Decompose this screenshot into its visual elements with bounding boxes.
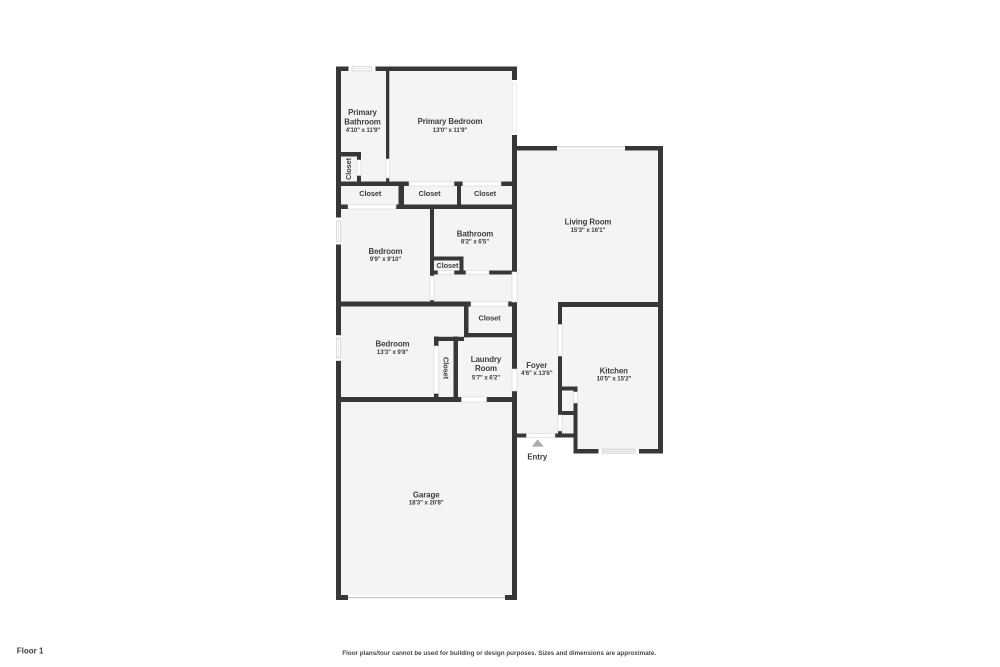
svg-text:5'7" x 6'2": 5'7" x 6'2" xyxy=(472,374,500,381)
svg-text:Closet: Closet xyxy=(441,357,450,380)
svg-text:Closet: Closet xyxy=(344,157,353,180)
svg-text:Kitchen: Kitchen xyxy=(600,366,629,375)
svg-text:18'3" x 20'8": 18'3" x 20'8" xyxy=(409,500,444,507)
svg-text:Bathroom: Bathroom xyxy=(457,229,494,238)
svg-text:Bathroom: Bathroom xyxy=(344,118,381,127)
svg-text:Primary Bedroom: Primary Bedroom xyxy=(418,117,483,126)
svg-text:Closet: Closet xyxy=(479,314,502,323)
svg-text:Closet: Closet xyxy=(474,189,497,198)
svg-text:Room: Room xyxy=(475,364,497,373)
svg-text:Living Room: Living Room xyxy=(565,218,612,227)
svg-text:Foyer: Foyer xyxy=(526,361,547,370)
svg-text:4'6" x 13'6": 4'6" x 13'6" xyxy=(521,370,553,377)
svg-text:15'3" x 16'1": 15'3" x 16'1" xyxy=(571,227,606,234)
svg-text:8'2" x 6'5": 8'2" x 6'5" xyxy=(461,238,489,245)
svg-text:Primary: Primary xyxy=(348,108,377,117)
svg-text:Laundry: Laundry xyxy=(471,355,502,364)
svg-text:Closet: Closet xyxy=(436,261,459,270)
svg-text:Closet: Closet xyxy=(359,189,382,198)
svg-text:Floor plans/tour cannot be use: Floor plans/tour cannot be used for buil… xyxy=(342,650,656,657)
svg-text:9'9" x 9'10": 9'9" x 9'10" xyxy=(370,256,402,263)
svg-text:Garage: Garage xyxy=(413,491,440,500)
svg-text:Floor 1: Floor 1 xyxy=(17,646,44,655)
svg-text:Closet: Closet xyxy=(419,189,442,198)
svg-text:Bedroom: Bedroom xyxy=(376,340,410,349)
svg-text:10'5" x 15'2": 10'5" x 15'2" xyxy=(597,376,632,383)
svg-text:Entry: Entry xyxy=(527,452,548,461)
svg-text:Bedroom: Bedroom xyxy=(369,247,403,256)
svg-text:13'3" x 9'8": 13'3" x 9'8" xyxy=(377,349,409,356)
svg-text:13'0" x 11'9": 13'0" x 11'9" xyxy=(433,127,468,134)
svg-text:4'10" x 11'9": 4'10" x 11'9" xyxy=(346,127,381,134)
